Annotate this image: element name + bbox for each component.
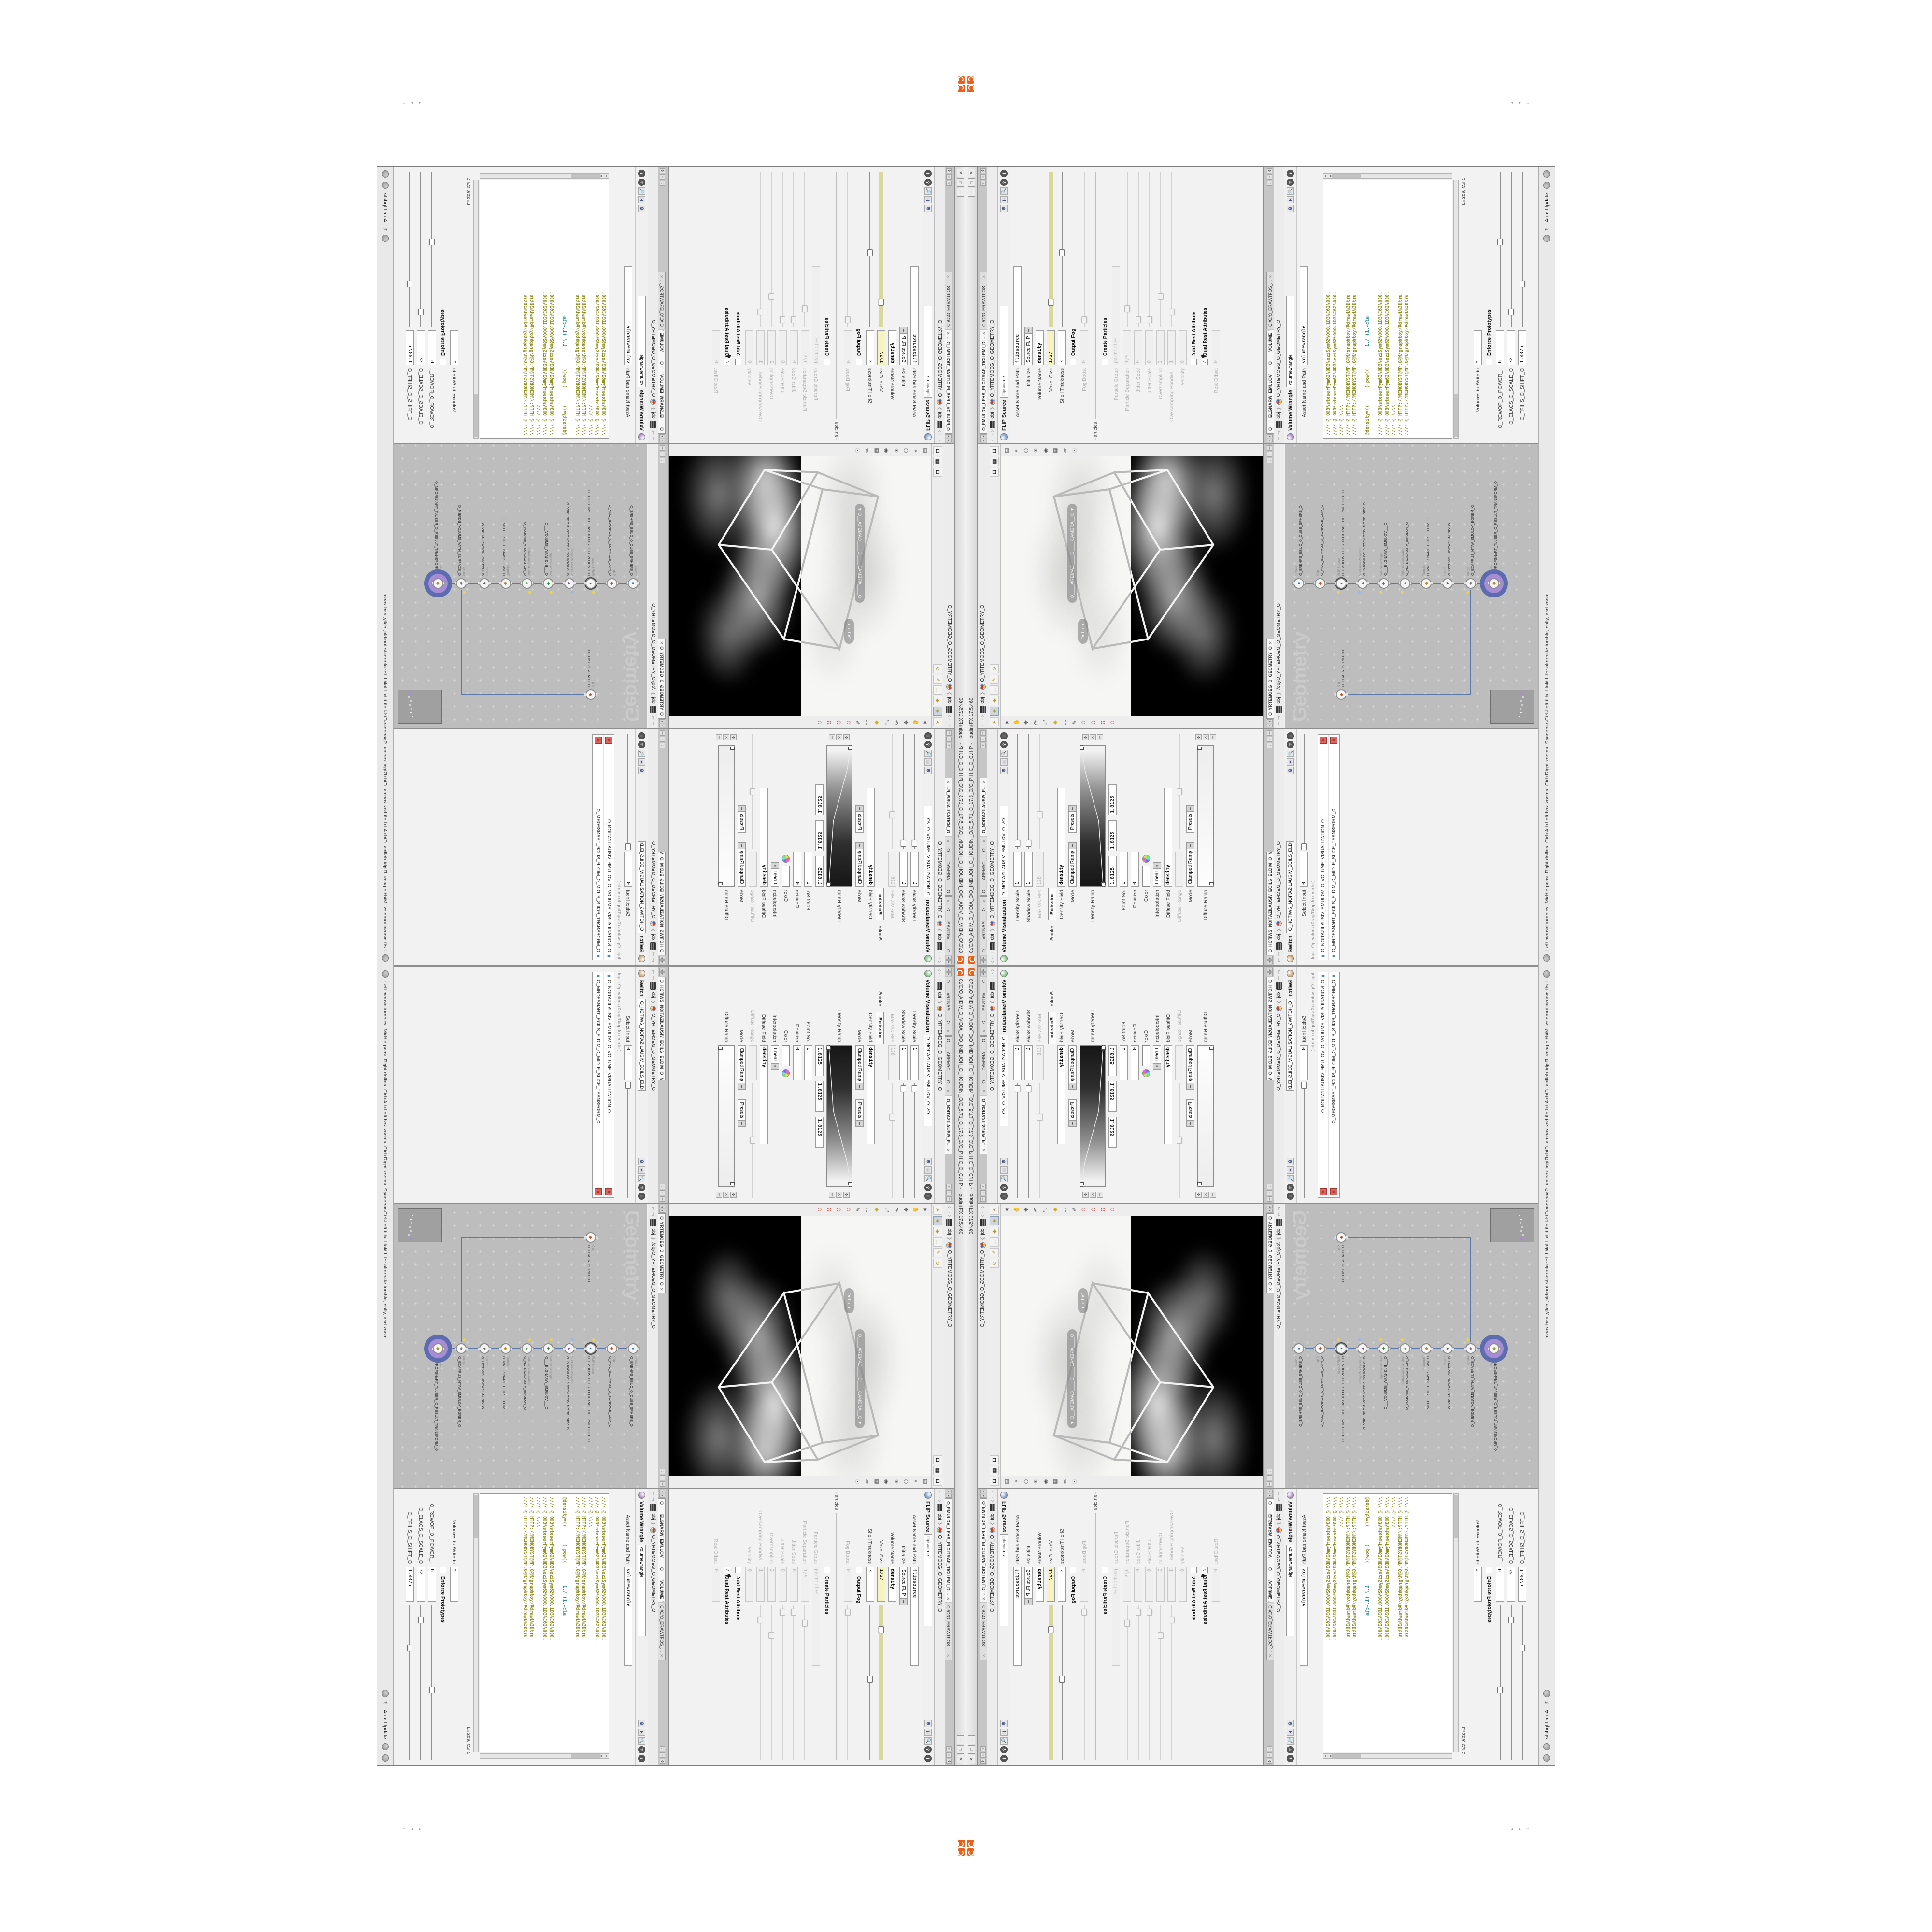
pane-tab[interactable]: O____AREMAC____O...✕ <box>980 837 987 896</box>
parameter-field[interactable]: 1 <box>899 1045 908 1080</box>
pane-maximize-icon[interactable]: ▫ <box>660 452 665 457</box>
maximize-button[interactable]: □ <box>957 178 964 187</box>
parameter-field[interactable]: density <box>888 1567 896 1602</box>
color-swatch[interactable] <box>782 866 790 887</box>
parameter-slider[interactable] <box>802 1605 809 1760</box>
ramp-flatten-icon[interactable]: ▭ <box>829 1192 836 1198</box>
reorder-arrows-icon[interactable]: ▲▼ <box>596 974 601 978</box>
pane-split-icon[interactable]: ✛ <box>980 168 986 173</box>
parameter-field[interactable]: 0 <box>1300 852 1308 887</box>
ramp-value-field[interactable]: 1.8125 <box>1108 1045 1117 1076</box>
pane-maximize-icon[interactable]: ▫ <box>660 1190 665 1195</box>
info-icon[interactable]: i <box>1287 1193 1294 1200</box>
parameter-field[interactable]: 32 <box>417 330 425 365</box>
parameter-slider[interactable] <box>1508 172 1515 327</box>
ramp-flatten-icon[interactable]: ▭ <box>1097 1192 1103 1198</box>
node-icon[interactable]: ▼ <box>479 578 490 589</box>
reorder-down-icon[interactable]: ▼ <box>1334 954 1336 958</box>
parameter-slider[interactable] <box>1519 172 1526 327</box>
tab-close-icon[interactable]: ✕ <box>946 899 951 903</box>
node-icon[interactable]: ◆ <box>1421 578 1432 589</box>
breadcrumb-back-icon[interactable]: ⇦ <box>937 437 943 441</box>
parameter-field[interactable]: flipsource <box>910 1567 919 1666</box>
subtab-emission[interactable]: Emission <box>1048 1012 1056 1044</box>
breadcrumb-back-icon[interactable]: ⇦ <box>980 1206 986 1210</box>
ramp-value-field[interactable]: 1.8125 <box>815 820 824 851</box>
parameter-slider[interactable] <box>1124 1605 1131 1760</box>
code-vscrollbar[interactable]: ▲▼ <box>1323 173 1452 179</box>
breadcrumb-forward-icon[interactable]: ⇨ <box>980 715 986 720</box>
parameter-slider[interactable] <box>757 172 764 327</box>
list-item[interactable]: ▲▼O_MROFSNART_ECILS_ELDIM_O_MIDLE_SLICE_… <box>593 972 603 1197</box>
tab-close-icon[interactable]: ✕ <box>982 1654 986 1657</box>
network-back-icon[interactable]: ⇦ <box>1276 1206 1282 1210</box>
parameter-field[interactable]: 1.4375 <box>1518 330 1526 365</box>
scrollbar-up-icon[interactable]: ▲ <box>1324 1754 1329 1758</box>
reorder-up-icon[interactable]: ▲ <box>609 954 611 958</box>
tab-scroll-right-icon[interactable]: ▸ <box>980 972 986 976</box>
pane-tab[interactable]: O____ELGNARW_EMULOV____O____VOLUME_WRANG… <box>658 1498 666 1602</box>
ramp-right-marker[interactable] <box>730 745 735 750</box>
network-minimap[interactable] <box>398 1208 442 1242</box>
slider-handle[interactable] <box>1136 316 1141 323</box>
checkbox[interactable] <box>1191 359 1197 365</box>
ramp-widget[interactable]: ⌂ <box>718 1045 735 1187</box>
pane-menu-icon[interactable]: ▿ <box>980 743 986 748</box>
parameter-slider[interactable] <box>889 734 896 849</box>
node-icon[interactable]: ● <box>1400 1343 1410 1354</box>
node-name-field[interactable]: O_HCTIWS_NOITAZILAUSIV_ECILS_ELDIM_O_ <box>638 999 646 1091</box>
parameter-slider[interactable] <box>418 1605 425 1760</box>
tab-scroll-left-icon[interactable]: ◂ <box>1267 960 1273 964</box>
scrollbar-up-icon[interactable]: ▲ <box>1324 174 1329 178</box>
breadcrumb-back-icon[interactable]: ⇦ <box>650 958 656 963</box>
slider-handle[interactable] <box>879 299 884 306</box>
tab-close-icon[interactable]: ✕ <box>982 839 986 843</box>
node-icon[interactable]: ★ <box>456 1343 467 1354</box>
gear-icon[interactable]: ⚙ <box>638 1158 645 1165</box>
parameter-field[interactable]: 0 <box>712 330 720 365</box>
point-snap-magnet-icon[interactable]: Ω <box>1091 720 1098 724</box>
gear-icon[interactable]: ⚙ <box>924 1158 932 1165</box>
tab-close-icon[interactable]: ✕ <box>660 1288 664 1291</box>
desktop-houdini-logo-1[interactable] <box>967 1840 974 1847</box>
node-name-field[interactable]: O_NOITAZILAUSIV_EMULOV_O_VO <box>1000 1035 1008 1126</box>
slider-handle[interactable] <box>1081 1609 1087 1616</box>
parameter-field[interactable]: density <box>1164 1045 1172 1144</box>
title-bar[interactable]: C:/O/O_AIDIV_O_VIDIA_O/O_INIDUOH_O_HOUDI… <box>966 167 977 966</box>
tab-scroll-left-icon[interactable]: ◂ <box>1267 724 1273 727</box>
breadcrumb-forward-icon[interactable]: ⇨ <box>1276 976 1282 980</box>
node-name-field[interactable]: O_NOITAZILAUSIV_EMULOV_O_VO <box>924 806 932 897</box>
breadcrumb-forward-icon[interactable]: ⇨ <box>650 952 656 956</box>
delete-input-icon[interactable]: ✕ <box>595 1188 602 1195</box>
pane-tab[interactable]: O_NOITAZILAUSIV_E...✕ <box>945 1096 952 1155</box>
parameter-slider[interactable] <box>911 734 918 849</box>
tab-scroll-left-icon[interactable]: ◂ <box>946 968 952 972</box>
ramp-flatten-icon[interactable]: ▭ <box>1097 734 1103 740</box>
ramp-value-field[interactable]: 1.8125 <box>815 856 824 887</box>
network-node[interactable]: ◆TransformO_MROFSNART_TLUSER_O_RESULT_TR… <box>1489 481 1499 589</box>
info-icon[interactable]: i <box>1000 1755 1008 1762</box>
scroll-up-glyph[interactable]: ▲ <box>1510 101 1514 105</box>
search-icon[interactable]: 🔍 <box>638 1175 645 1182</box>
node-name-field[interactable]: flipsource <box>1000 306 1008 398</box>
breadcrumb-forward-icon[interactable]: ⇨ <box>1276 952 1282 956</box>
slider-handle[interactable] <box>890 1114 895 1121</box>
grid-icon[interactable]: ▦ <box>990 1466 999 1475</box>
grid-icon[interactable]: ▦ <box>933 1466 942 1475</box>
slider-handle[interactable] <box>1169 309 1174 315</box>
search-icon[interactable]: 🔍 <box>638 1737 645 1745</box>
breadcrumb-back-icon[interactable]: ⇦ <box>650 969 656 974</box>
slider-handle[interactable] <box>792 316 797 323</box>
camera-pill[interactable]: O____AREMAC____O____CAMERA__O▾ <box>855 1329 865 1428</box>
slider-handle[interactable] <box>419 1617 424 1623</box>
network-node[interactable]: ◆TransformO_MROFSNART_TLUSER_O_RESULT_TR… <box>1489 1343 1499 1451</box>
question-icon[interactable]: ? <box>638 179 645 186</box>
tab-close-icon[interactable]: ✕ <box>982 899 986 903</box>
tab-scroll-right-icon[interactable]: ▸ <box>946 1494 952 1498</box>
pane-split-icon[interactable]: ✛ <box>1267 168 1272 173</box>
network-node[interactable]: ◐FLIP SourceO_EMULOV_LEHS_ELCITRAP_TICIL… <box>1336 1343 1347 1442</box>
node-name-field[interactable]: flipsource <box>924 306 932 398</box>
node-icon[interactable]: ◆ <box>585 1232 596 1243</box>
slider-handle[interactable] <box>626 843 631 850</box>
vex-code-editor[interactable]: //// @ 0D3%steserPym62%0D3%eziSym62%000.… <box>480 1493 609 1752</box>
pane-tab[interactable]: O_EMULOV_LEHS_ELCITRAP_TICILPMI_DI...✕ <box>980 330 987 434</box>
slider-handle[interactable] <box>430 1687 435 1693</box>
brush-tool-icon[interactable]: ✎ <box>853 720 861 724</box>
node-name-field[interactable]: O_NOITAZILAUSIV_EMULOV_O_VO <box>924 1035 932 1126</box>
pane-split-icon[interactable]: ✛ <box>980 1759 986 1764</box>
scroll-up-glyph[interactable]: ▲ <box>418 101 422 105</box>
parameter-slider[interactable] <box>1081 172 1088 327</box>
breadcrumb-back-icon[interactable]: ⇦ <box>1276 958 1282 963</box>
parameter-field[interactable]: 3 <box>1058 1567 1066 1602</box>
select-arrow-icon[interactable]: ➤ <box>1004 1207 1011 1212</box>
checkbox[interactable]: ✓ <box>724 1567 730 1573</box>
parameter-field[interactable]: 2 <box>1156 330 1165 365</box>
pane-split-icon[interactable]: ✛ <box>1267 1759 1272 1764</box>
parameter-field[interactable]: 1 <box>1120 852 1128 887</box>
box-select-icon[interactable]: ▭ <box>933 1237 942 1247</box>
slider-handle[interactable] <box>1037 811 1042 818</box>
scroll-down-glyph[interactable]: ▼ <box>410 1827 414 1831</box>
parameter-slider[interactable] <box>750 734 756 849</box>
tab-scroll-left-icon[interactable]: ◂ <box>980 968 986 972</box>
ramp-value-field[interactable]: 1.8125 <box>815 784 824 815</box>
node-icon[interactable]: ● <box>1400 578 1410 589</box>
tab-close-icon[interactable]: ✕ <box>982 332 986 335</box>
list-item[interactable]: ▲▼O_NOITAZILAUSIV_EMULOV_O_VOLUME_VISUAL… <box>603 735 614 960</box>
refresh-icon[interactable]: ↻ <box>382 1701 389 1706</box>
node-icon[interactable]: ✚ <box>1378 578 1389 589</box>
node-name-field[interactable]: volumewrangle <box>1286 1545 1294 1636</box>
pane-menu-icon[interactable]: ▿ <box>980 1746 986 1751</box>
ramp-add-icon[interactable]: ✛ <box>1195 734 1202 740</box>
node-icon[interactable]: ◐ <box>585 1343 596 1354</box>
tab-scroll-left-icon[interactable]: ◂ <box>980 439 986 442</box>
scrollbar-thumb[interactable] <box>1454 1495 1458 1538</box>
tab-scroll-left-icon[interactable]: ◂ <box>659 960 665 964</box>
wireframe-toggle-icon[interactable]: ⬡ <box>902 448 909 453</box>
reorder-down-icon[interactable]: ▼ <box>1334 974 1336 978</box>
parameter-slider[interactable] <box>1497 1605 1504 1760</box>
parameter-field[interactable]: volumewrangle <box>624 1567 632 1666</box>
tab-scroll-right-icon[interactable]: ▸ <box>659 972 665 976</box>
secure-selection-icon[interactable]: ◈ <box>933 1216 942 1225</box>
network-node[interactable]: ◆TransformO_MROFSNART_ECILS_ELDIM_O <box>500 1343 511 1414</box>
reorder-down-icon[interactable]: ▼ <box>607 954 609 958</box>
pane-menu-icon[interactable]: ▿ <box>980 1184 986 1189</box>
parameter-field[interactable]: 0 <box>844 1567 852 1602</box>
search-icon[interactable]: 🔍 <box>924 1175 932 1182</box>
camera-lock-icon[interactable]: ◉ <box>1042 1479 1050 1484</box>
tab-scroll-left-icon[interactable]: ◂ <box>659 439 665 442</box>
delete-input-icon[interactable]: ✕ <box>1330 1188 1337 1195</box>
parameter-slider[interactable] <box>1301 734 1307 849</box>
parameter-field[interactable]: flipsource <box>910 266 919 365</box>
pane-split-icon[interactable]: ✛ <box>946 1196 952 1202</box>
pane-tab[interactable]: O_NOITAZILAUSIV_E...✕ <box>945 778 952 837</box>
ramp-add-icon[interactable]: ✛ <box>844 1192 850 1198</box>
scrollbar-thumb[interactable] <box>1332 1754 1361 1758</box>
dropdown[interactable]: Presets◂▸ <box>1186 805 1194 833</box>
color-swatch[interactable] <box>1142 866 1150 887</box>
parameter-slider[interactable] <box>418 172 425 327</box>
info-icon[interactable]: i <box>638 170 645 177</box>
reorder-arrows-icon[interactable]: ▲▼ <box>607 974 611 978</box>
parameter-slider[interactable] <box>1059 1605 1065 1760</box>
scale-tool-icon[interactable]: ⤢ <box>882 720 890 724</box>
network-back-icon[interactable]: ⇦ <box>650 1206 656 1210</box>
checkbox[interactable] <box>856 1567 862 1573</box>
parameter-field[interactable]: flipsource <box>1013 1567 1022 1666</box>
tab-scroll-right-icon[interactable]: ▸ <box>946 956 952 960</box>
question-icon[interactable]: ? <box>924 179 932 186</box>
ramp-value-field[interactable]: 1.8125 <box>815 1045 824 1076</box>
ortho-pill[interactable]: Ortho▾ <box>844 619 854 644</box>
breadcrumb-back-icon[interactable]: ⇦ <box>980 722 986 726</box>
parameter-field[interactable]: * <box>450 1567 458 1602</box>
code-vscrollbar[interactable]: ▲▼ <box>1323 1753 1452 1759</box>
slider-handle[interactable] <box>1508 309 1514 315</box>
parameter-slider[interactable] <box>780 172 786 327</box>
secure-selection-icon[interactable]: ◆ <box>873 720 880 724</box>
desktop-houdini-logo-1[interactable] <box>958 85 965 92</box>
dropdown[interactable]: Clamped Ramp◂▸ <box>1068 1045 1077 1090</box>
display-options-icon[interactable]: ▤ <box>921 1479 928 1484</box>
parameter-field[interactable]: 0 <box>1134 1567 1142 1602</box>
ramp-right-marker[interactable] <box>1197 1182 1202 1187</box>
tab-scroll-right-icon[interactable]: ▸ <box>980 956 986 960</box>
network-node[interactable]: ◆TransformO_MROFSNART_TLUSER_O_RESULT_TR… <box>433 1343 443 1451</box>
parameter-slider[interactable] <box>1176 734 1183 849</box>
parameter-slider[interactable] <box>900 734 907 849</box>
parameter-slider[interactable] <box>1059 172 1065 327</box>
checkbox[interactable] <box>824 1567 830 1573</box>
parameter-field[interactable]: 1 <box>1013 852 1022 887</box>
reorder-arrows-icon[interactable]: ▲▼ <box>596 954 601 958</box>
parameter-field[interactable]: particles <box>1112 266 1120 365</box>
pane-menu-icon[interactable]: ▿ <box>946 743 952 748</box>
slider-handle[interactable] <box>1497 239 1503 245</box>
shading-mode-icon[interactable]: ◐ <box>1013 449 1021 452</box>
network-canvas[interactable]: Geometry●SphereO_EREHPS_EBUC_O_CUBE_SPHE… <box>1285 444 1539 728</box>
parameter-field[interactable] <box>1175 852 1183 887</box>
parameter-field[interactable]: 0 <box>1179 330 1187 365</box>
tab-scroll-left-icon[interactable]: ◂ <box>1267 968 1273 972</box>
houdini-help-icon[interactable]: H <box>924 1166 932 1174</box>
dropdown[interactable]: Source FLIP◂▸ <box>899 1567 908 1605</box>
parameter-field[interactable]: volumewrangle <box>624 266 632 365</box>
node-icon[interactable]: ◆ <box>1315 1343 1325 1354</box>
pane-maximize-icon[interactable]: ▫ <box>660 1752 665 1758</box>
desktop-houdini-logo-2[interactable] <box>967 76 974 84</box>
reorder-down-icon[interactable]: ▼ <box>1323 974 1326 978</box>
shading-mode-icon[interactable]: ◐ <box>911 1480 919 1483</box>
parameter-field[interactable]: 0 <box>1212 1567 1220 1602</box>
dropdown[interactable]: Presets◂▸ <box>738 1099 746 1127</box>
pane-tab[interactable]: O_YRTEMOEG_O_GEOMETRY_O✕ <box>1266 1213 1274 1293</box>
tab-scroll-left-icon[interactable]: ◂ <box>659 1205 665 1208</box>
network-node[interactable]: ✚Volume WrangleO___ELGNARW_EMULOV___O <box>543 1343 554 1409</box>
brush-tool-icon[interactable]: ✎ <box>1071 720 1079 724</box>
network-node[interactable]: ★MergeO_ECAFRUS_HTIW_EMULOV_EGREM_O <box>456 1343 467 1427</box>
brush-tool-icon[interactable]: ✎ <box>1071 1207 1079 1212</box>
color-wheel-icon[interactable] <box>1142 1069 1150 1077</box>
tab-scroll-right-icon[interactable]: ▸ <box>1267 1209 1273 1213</box>
viewport-canvas[interactable]: Ortho▾O____AREMAC____O____CAMERA__O▾ <box>669 456 931 716</box>
dropdown[interactable]: Presets◂▸ <box>738 805 746 833</box>
scroll-down-glyph[interactable]: ▼ <box>1518 101 1522 105</box>
breadcrumb-forward-icon[interactable]: ⇨ <box>989 1497 995 1502</box>
parameter-slider[interactable] <box>900 1083 907 1198</box>
ramp-delete-icon[interactable]: ✕ <box>837 1192 843 1198</box>
parameter-field[interactable]: particles <box>812 266 820 365</box>
reorder-down-icon[interactable]: ▼ <box>596 954 598 958</box>
secure-selection-icon[interactable]: ◈ <box>990 1216 999 1225</box>
node-name-field[interactable]: volumewrangle <box>638 296 646 387</box>
edge-snap-magnet-icon[interactable]: Ω <box>824 720 832 724</box>
pane-split-icon[interactable]: ✛ <box>1267 1196 1272 1202</box>
view-grid-icon[interactable]: ▦ <box>873 1479 880 1484</box>
parameter-field[interactable]: 128 <box>1036 852 1044 887</box>
parameter-slider[interactable] <box>757 1605 764 1760</box>
tab-close-icon[interactable]: ✕ <box>982 275 986 278</box>
edge-snap-magnet-icon[interactable]: Ω <box>1100 1207 1108 1211</box>
pane-menu-icon[interactable]: ▿ <box>1267 458 1272 463</box>
slider-handle[interactable] <box>1059 249 1065 256</box>
ramp-add-icon[interactable]: ✛ <box>1195 1192 1202 1198</box>
breadcrumb-back-icon[interactable]: ⇦ <box>650 1491 656 1495</box>
update-mode-icon-1[interactable] <box>382 1743 389 1750</box>
breadcrumb-forward-icon[interactable]: ⇨ <box>1276 430 1282 435</box>
parameter-slider[interactable] <box>1146 172 1153 327</box>
node-name-field[interactable]: flipsource <box>924 1534 932 1626</box>
viewport-canvas[interactable]: Ortho▾O____AREMAC____O____CAMERA__O▾ <box>1001 456 1263 716</box>
search-icon[interactable]: 🔍 <box>1287 1175 1294 1182</box>
globe-icon[interactable] <box>382 235 389 242</box>
reorder-up-icon[interactable]: ▲ <box>598 974 601 978</box>
houdini-help-icon[interactable]: H <box>638 1729 645 1736</box>
pane-menu-icon[interactable]: ▿ <box>1267 1469 1272 1474</box>
parameter-field[interactable]: 1 <box>756 330 765 365</box>
ramp-value-field[interactable]: 1.8125 <box>815 1081 824 1112</box>
dropdown[interactable]: Clamped Ramp◂▸ <box>855 1045 864 1090</box>
parameter-field[interactable]: volumewrangle <box>1300 1567 1308 1666</box>
pane-tab[interactable]: O____AREMAC____O...✕ <box>945 837 952 896</box>
update-mode-icon-2[interactable] <box>382 1754 389 1762</box>
lasso-select-icon[interactable]: 〰 <box>863 1207 870 1212</box>
camera-pill[interactable]: O____AREMAC____O____CAMERA__O▾ <box>1067 504 1077 603</box>
parameter-slider[interactable] <box>1048 172 1054 327</box>
minimize-button[interactable]: ─ <box>957 188 964 197</box>
snapshot-icon[interactable]: ⊡ <box>1071 448 1079 453</box>
parameter-field[interactable] <box>749 1045 757 1080</box>
slider-handle[interactable] <box>879 1626 884 1633</box>
parameter-field[interactable]: 6 <box>1496 1567 1504 1602</box>
tab-close-icon[interactable]: ✕ <box>946 1654 951 1657</box>
tab-close-icon[interactable]: ✕ <box>660 275 664 278</box>
parameter-field[interactable]: density <box>1164 788 1172 887</box>
refresh-icon[interactable]: ↻ <box>1544 1701 1550 1706</box>
pane-menu-icon[interactable]: ▿ <box>1267 181 1272 186</box>
parameter-field[interactable]: 6 <box>1496 330 1504 365</box>
box-select-icon[interactable]: ▭ <box>990 1237 999 1247</box>
slider-handle[interactable] <box>408 281 413 287</box>
pane-menu-icon[interactable]: ▿ <box>946 181 952 186</box>
parameter-slider[interactable] <box>407 1605 413 1760</box>
maximize-button[interactable]: □ <box>968 178 975 187</box>
search-icon[interactable]: 🔍 <box>638 750 645 757</box>
node-icon[interactable]: ◆ <box>585 689 596 700</box>
slider-handle[interactable] <box>1059 1676 1065 1683</box>
breadcrumb-back-icon[interactable]: ⇦ <box>989 958 995 963</box>
tab-scroll-right-icon[interactable]: ▸ <box>659 956 665 960</box>
update-mode-icon-2[interactable] <box>1543 170 1550 178</box>
parameter-slider[interactable] <box>1135 1605 1142 1760</box>
question-icon[interactable]: ? <box>1000 1184 1008 1191</box>
parameter-slider[interactable] <box>1025 1083 1032 1198</box>
parameter-field[interactable]: 2 <box>767 330 776 365</box>
gear-icon[interactable]: ⚙ <box>1000 767 1008 774</box>
network-minimap[interactable] <box>1490 690 1534 724</box>
parameter-slider[interactable] <box>802 172 809 327</box>
question-icon[interactable]: ? <box>924 741 932 748</box>
parameter-field[interactable]: density <box>760 788 768 887</box>
tab-scroll-right-icon[interactable]: ▸ <box>659 434 665 438</box>
question-icon[interactable]: ? <box>1000 1746 1008 1753</box>
tab-close-icon[interactable]: ✕ <box>946 839 951 843</box>
pane-menu-icon[interactable]: ▿ <box>1267 1184 1272 1189</box>
parameter-field[interactable]: 0 <box>1300 1045 1308 1080</box>
parameter-field[interactable] <box>749 852 757 887</box>
node-icon[interactable]: ● <box>1293 578 1304 589</box>
parameter-slider[interactable] <box>780 1605 786 1760</box>
parameter-slider[interactable] <box>1135 172 1142 327</box>
network-node[interactable]: ✚Volume WrangleO___ELGNARW_EMULOV___O <box>1378 523 1389 589</box>
tab-close-icon[interactable]: ✕ <box>946 781 951 784</box>
scale-tool-icon[interactable]: ⤢ <box>882 1207 890 1212</box>
parameter-field[interactable]: 0 <box>790 330 798 365</box>
node-name-field[interactable]: O_HCTIWS_NOITAZILAUSIV_ECILS_ELDIM_O_ <box>638 841 646 933</box>
parameter-field[interactable]: 1 <box>1024 852 1033 887</box>
handles-tool-icon[interactable]: ◆ <box>990 696 999 705</box>
pane-maximize-icon[interactable]: ▫ <box>980 1752 986 1758</box>
question-icon[interactable]: ? <box>924 1746 932 1753</box>
